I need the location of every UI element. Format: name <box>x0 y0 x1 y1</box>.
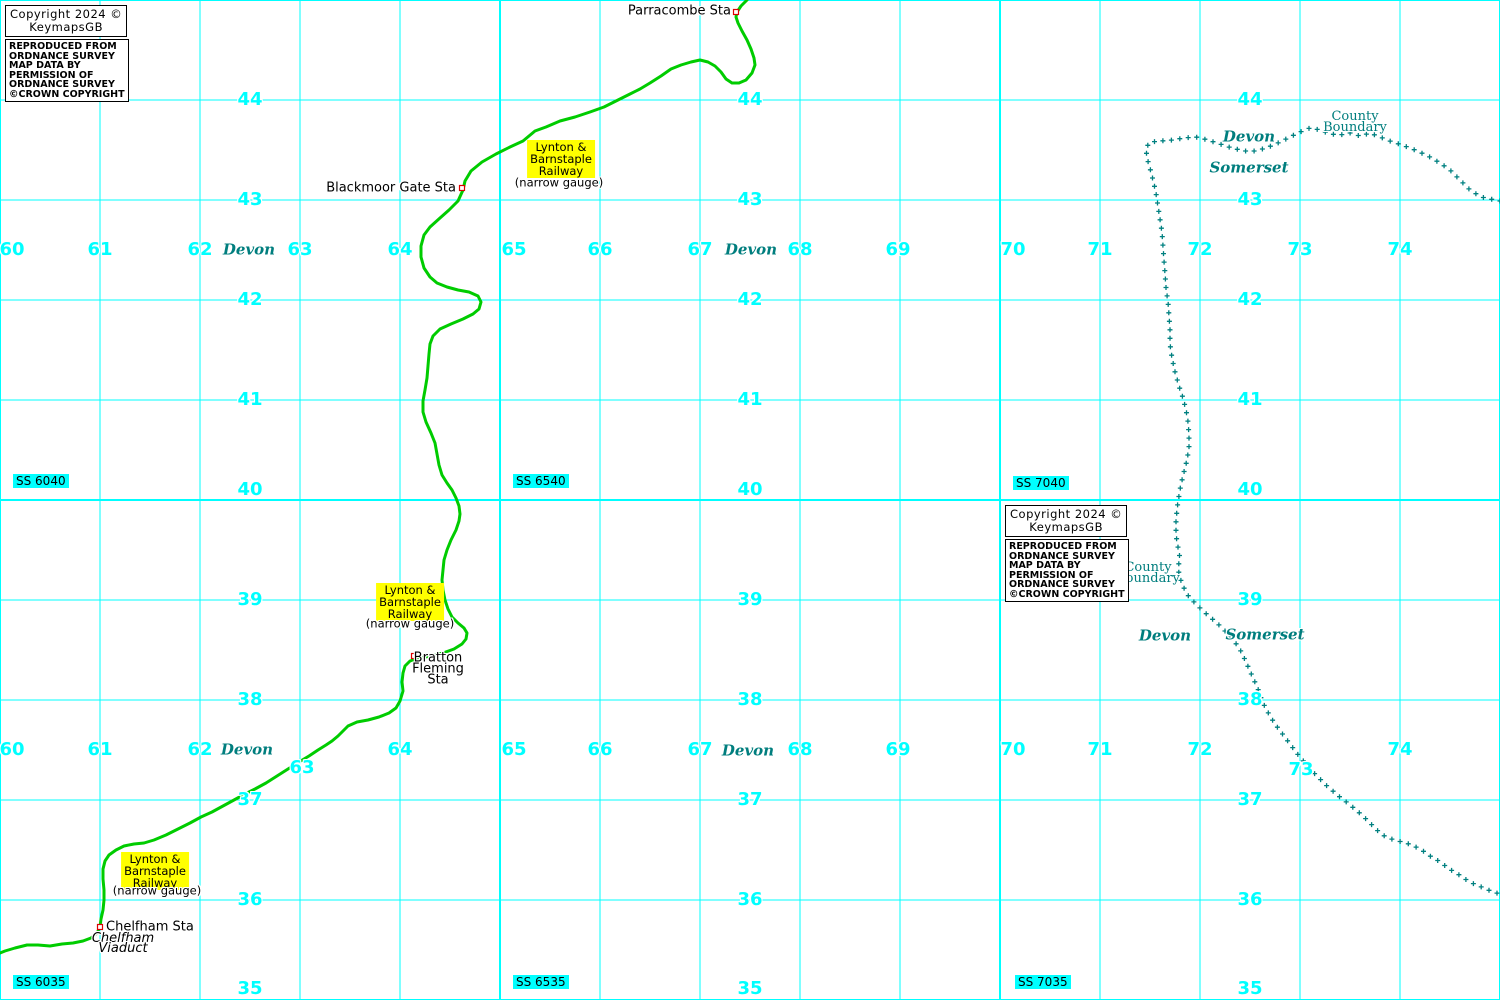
grid-northing-label-text: 36 <box>237 891 262 909</box>
grid-easting-label-text: 71 <box>1087 241 1112 259</box>
grid-easting-label-text: 60 <box>0 741 25 759</box>
grid-northing-label: 42 <box>237 291 262 309</box>
railway-gauge-label: (narrow gauge) <box>366 618 454 630</box>
grid-northing-label: 36 <box>237 891 262 909</box>
grid-northing-label-text: 38 <box>1237 691 1262 709</box>
grid-northing-label: 38 <box>237 691 262 709</box>
county-name-label-text: Devon <box>1223 130 1275 145</box>
grid-northing-label: 35 <box>737 980 762 998</box>
grid-easting-label: 71 <box>1087 741 1112 759</box>
grid-ref-label: SS 6540 <box>513 474 569 488</box>
county-name-label-text: Devon <box>221 743 273 758</box>
grid-easting-label: 70 <box>1000 741 1025 759</box>
county-boundary-label-text: Boundary <box>1323 122 1387 133</box>
grid-ref-label-text: SS 6040 <box>16 475 66 487</box>
grid-easting-label: 66 <box>587 741 612 759</box>
county-name-label: Devon <box>221 743 273 758</box>
county-name-label: Devon <box>223 243 275 258</box>
grid-easting-label-text: 62 <box>187 241 212 259</box>
grid-easting-label-text: 70 <box>1000 241 1025 259</box>
grid-northing-label: 38 <box>1237 691 1262 709</box>
map-labels-layer: 6061626364656667686970717273746061626364… <box>0 0 1500 1000</box>
grid-easting-label: 70 <box>1000 241 1025 259</box>
grid-northing-label-text: 38 <box>737 691 762 709</box>
grid-easting-label: 60 <box>0 741 25 759</box>
os-attribution-box: REPRODUCED FROMORDNANCE SURVEYMAP DATA B… <box>1005 539 1129 602</box>
grid-northing-label-text: 44 <box>1237 91 1262 109</box>
grid-easting-label-text: 69 <box>885 741 910 759</box>
grid-easting-label-text: 71 <box>1087 741 1112 759</box>
grid-northing-label-text: 37 <box>237 791 262 809</box>
os-attribution-box-text: ©CROWN COPYRIGHT <box>9 90 125 100</box>
grid-easting-label: 65 <box>501 241 526 259</box>
grid-easting-label: 72 <box>1187 241 1212 259</box>
county-name-label-text: Devon <box>725 243 777 258</box>
grid-easting-label-text: 74 <box>1387 241 1412 259</box>
grid-northing-label: 44 <box>1237 91 1262 109</box>
grid-easting-label: 66 <box>587 241 612 259</box>
grid-easting-label: 67 <box>687 241 712 259</box>
county-boundary-label: CountyBoundary <box>1323 111 1387 133</box>
grid-northing-label-text: 41 <box>737 391 762 409</box>
railway-gauge-label-text: (narrow gauge) <box>515 177 603 189</box>
grid-easting-label-text: 60 <box>0 241 25 259</box>
grid-northing-label: 40 <box>237 481 262 499</box>
grid-ref-label: SS 7035 <box>1015 975 1071 989</box>
grid-easting-label: 65 <box>501 741 526 759</box>
grid-northing-label: 38 <box>737 691 762 709</box>
grid-easting-label-text: 66 <box>587 241 612 259</box>
grid-northing-label-text: 39 <box>737 591 762 609</box>
grid-northing-label-text: 40 <box>237 481 262 499</box>
grid-easting-label-text: 72 <box>1187 241 1212 259</box>
grid-ref-label: SS 7040 <box>1013 476 1069 490</box>
copyright-box: Copyright 2024 ©KeymapsGB <box>5 5 127 37</box>
station-label: Blackmoor Gate Sta <box>326 183 456 194</box>
grid-easting-label-text: 68 <box>787 241 812 259</box>
railway-gauge-label: (narrow gauge) <box>113 885 201 897</box>
map-canvas: 6061626364656667686970717273746061626364… <box>0 0 1500 1000</box>
grid-easting-label-text: 68 <box>787 741 812 759</box>
grid-northing-label-text: 40 <box>737 481 762 499</box>
grid-northing-label-text: 43 <box>1237 191 1262 209</box>
grid-easting-label: 73 <box>1288 761 1313 779</box>
grid-ref-label-text: SS 6535 <box>516 976 566 988</box>
grid-ref-label-text: SS 6035 <box>16 976 66 988</box>
grid-northing-label-text: 35 <box>737 980 762 998</box>
grid-easting-label: 68 <box>787 741 812 759</box>
grid-northing-label: 36 <box>1237 891 1262 909</box>
grid-northing-label-text: 35 <box>237 980 262 998</box>
grid-northing-label-text: 44 <box>737 91 762 109</box>
grid-easting-label-text: 64 <box>387 741 412 759</box>
station-label: Parracombe Sta <box>628 6 731 17</box>
grid-northing-label-text: 43 <box>737 191 762 209</box>
grid-northing-label: 35 <box>237 980 262 998</box>
grid-easting-label-text: 65 <box>501 241 526 259</box>
grid-easting-label: 67 <box>687 741 712 759</box>
grid-northing-label-text: 42 <box>237 291 262 309</box>
grid-northing-label: 40 <box>1237 481 1262 499</box>
grid-easting-label-text: 66 <box>587 741 612 759</box>
grid-easting-label: 63 <box>287 241 312 259</box>
grid-northing-label: 41 <box>237 391 262 409</box>
grid-northing-label-text: 38 <box>237 691 262 709</box>
grid-easting-label: 63 <box>289 759 314 777</box>
grid-easting-label-text: 67 <box>687 241 712 259</box>
grid-easting-label-text: 70 <box>1000 741 1025 759</box>
county-name-label-text: Devon <box>1139 629 1191 644</box>
county-name-label-text: Somerset <box>1225 628 1304 643</box>
grid-northing-label: 44 <box>237 91 262 109</box>
grid-easting-label: 60 <box>0 241 25 259</box>
grid-easting-label-text: 73 <box>1287 241 1312 259</box>
grid-northing-label: 42 <box>737 291 762 309</box>
viaduct-label-text: Viaduct <box>92 944 154 954</box>
grid-northing-label: 43 <box>737 191 762 209</box>
county-name-label: Devon <box>725 243 777 258</box>
grid-easting-label-text: 69 <box>885 241 910 259</box>
county-name-label-text: Somerset <box>1209 161 1288 176</box>
grid-easting-label-text: 65 <box>501 741 526 759</box>
grid-easting-label: 74 <box>1387 741 1412 759</box>
grid-ref-label: SS 6040 <box>13 474 69 488</box>
railway-name-label: Lynton &BarnstapleRailway <box>527 140 595 178</box>
grid-northing-label: 44 <box>737 91 762 109</box>
copyright-box-text: KeymapsGB <box>1010 521 1122 534</box>
grid-northing-label: 40 <box>737 481 762 499</box>
grid-ref-label: SS 6035 <box>13 975 69 989</box>
grid-easting-label-text: 67 <box>687 741 712 759</box>
grid-easting-label: 71 <box>1087 241 1112 259</box>
grid-northing-label: 39 <box>237 591 262 609</box>
grid-northing-label-text: 39 <box>1237 591 1262 609</box>
grid-easting-label: 69 <box>885 741 910 759</box>
grid-northing-label: 43 <box>237 191 262 209</box>
grid-northing-label-text: 36 <box>1237 891 1262 909</box>
county-name-label: Devon <box>722 744 774 759</box>
grid-northing-label-text: 43 <box>237 191 262 209</box>
grid-northing-label-text: 42 <box>1237 291 1262 309</box>
grid-northing-label: 35 <box>1237 980 1262 998</box>
grid-easting-label-text: 63 <box>289 759 314 777</box>
station-label-text: Parracombe Sta <box>628 6 731 17</box>
grid-easting-label-text: 64 <box>387 241 412 259</box>
station-label: BrattonFlemingSta <box>412 653 464 686</box>
grid-northing-label: 39 <box>1237 591 1262 609</box>
station-label-text: Blackmoor Gate Sta <box>326 183 456 194</box>
copyright-box: Copyright 2024 ©KeymapsGB <box>1005 505 1127 537</box>
grid-northing-label-text: 36 <box>737 891 762 909</box>
grid-northing-label: 42 <box>1237 291 1262 309</box>
copyright-box-text: KeymapsGB <box>10 21 122 34</box>
grid-northing-label-text: 35 <box>1237 980 1262 998</box>
viaduct-label: ChelfhamViaduct <box>92 934 154 954</box>
county-name-label-text: Devon <box>223 243 275 258</box>
county-name-label: Somerset <box>1225 628 1304 643</box>
grid-northing-label-text: 41 <box>1237 391 1262 409</box>
grid-northing-label: 43 <box>1237 191 1262 209</box>
railway-gauge-label: (narrow gauge) <box>515 177 603 189</box>
grid-easting-label: 64 <box>387 741 412 759</box>
grid-easting-label-text: 73 <box>1288 761 1313 779</box>
os-attribution-box-text: ©CROWN COPYRIGHT <box>1009 590 1125 600</box>
grid-ref-label-text: SS 7040 <box>1016 477 1066 489</box>
grid-northing-label-text: 41 <box>237 391 262 409</box>
grid-northing-label-text: 37 <box>1237 791 1262 809</box>
os-attribution-box: REPRODUCED FROMORDNANCE SURVEYMAP DATA B… <box>5 39 129 102</box>
grid-easting-label: 62 <box>187 241 212 259</box>
grid-easting-label: 72 <box>1187 741 1212 759</box>
grid-northing-label-text: 37 <box>737 791 762 809</box>
grid-northing-label: 36 <box>737 891 762 909</box>
grid-northing-label: 39 <box>737 591 762 609</box>
grid-ref-label-text: SS 6540 <box>516 475 566 487</box>
grid-easting-label: 64 <box>387 241 412 259</box>
grid-easting-label-text: 63 <box>287 241 312 259</box>
grid-easting-label: 69 <box>885 241 910 259</box>
grid-easting-label-text: 62 <box>187 741 212 759</box>
grid-northing-label: 37 <box>737 791 762 809</box>
grid-northing-label-text: 44 <box>237 91 262 109</box>
grid-northing-label-text: 39 <box>237 591 262 609</box>
county-name-label: Devon <box>1223 130 1275 145</box>
grid-northing-label: 41 <box>1237 391 1262 409</box>
grid-northing-label: 37 <box>1237 791 1262 809</box>
grid-easting-label-text: 72 <box>1187 741 1212 759</box>
grid-easting-label: 73 <box>1287 241 1312 259</box>
grid-easting-label: 61 <box>87 741 112 759</box>
grid-easting-label: 68 <box>787 241 812 259</box>
grid-easting-label: 61 <box>87 241 112 259</box>
grid-easting-label: 62 <box>187 741 212 759</box>
county-name-label: Devon <box>1139 629 1191 644</box>
county-name-label-text: Devon <box>722 744 774 759</box>
grid-northing-label: 37 <box>237 791 262 809</box>
grid-easting-label: 74 <box>1387 241 1412 259</box>
county-name-label: Somerset <box>1209 161 1288 176</box>
grid-northing-label-text: 42 <box>737 291 762 309</box>
grid-ref-label-text: SS 7035 <box>1018 976 1068 988</box>
railway-gauge-label-text: (narrow gauge) <box>366 618 454 630</box>
grid-ref-label: SS 6535 <box>513 975 569 989</box>
railway-gauge-label-text: (narrow gauge) <box>113 885 201 897</box>
grid-easting-label-text: 74 <box>1387 741 1412 759</box>
grid-easting-label-text: 61 <box>87 741 112 759</box>
grid-northing-label-text: 40 <box>1237 481 1262 499</box>
grid-northing-label: 41 <box>737 391 762 409</box>
grid-easting-label-text: 61 <box>87 241 112 259</box>
